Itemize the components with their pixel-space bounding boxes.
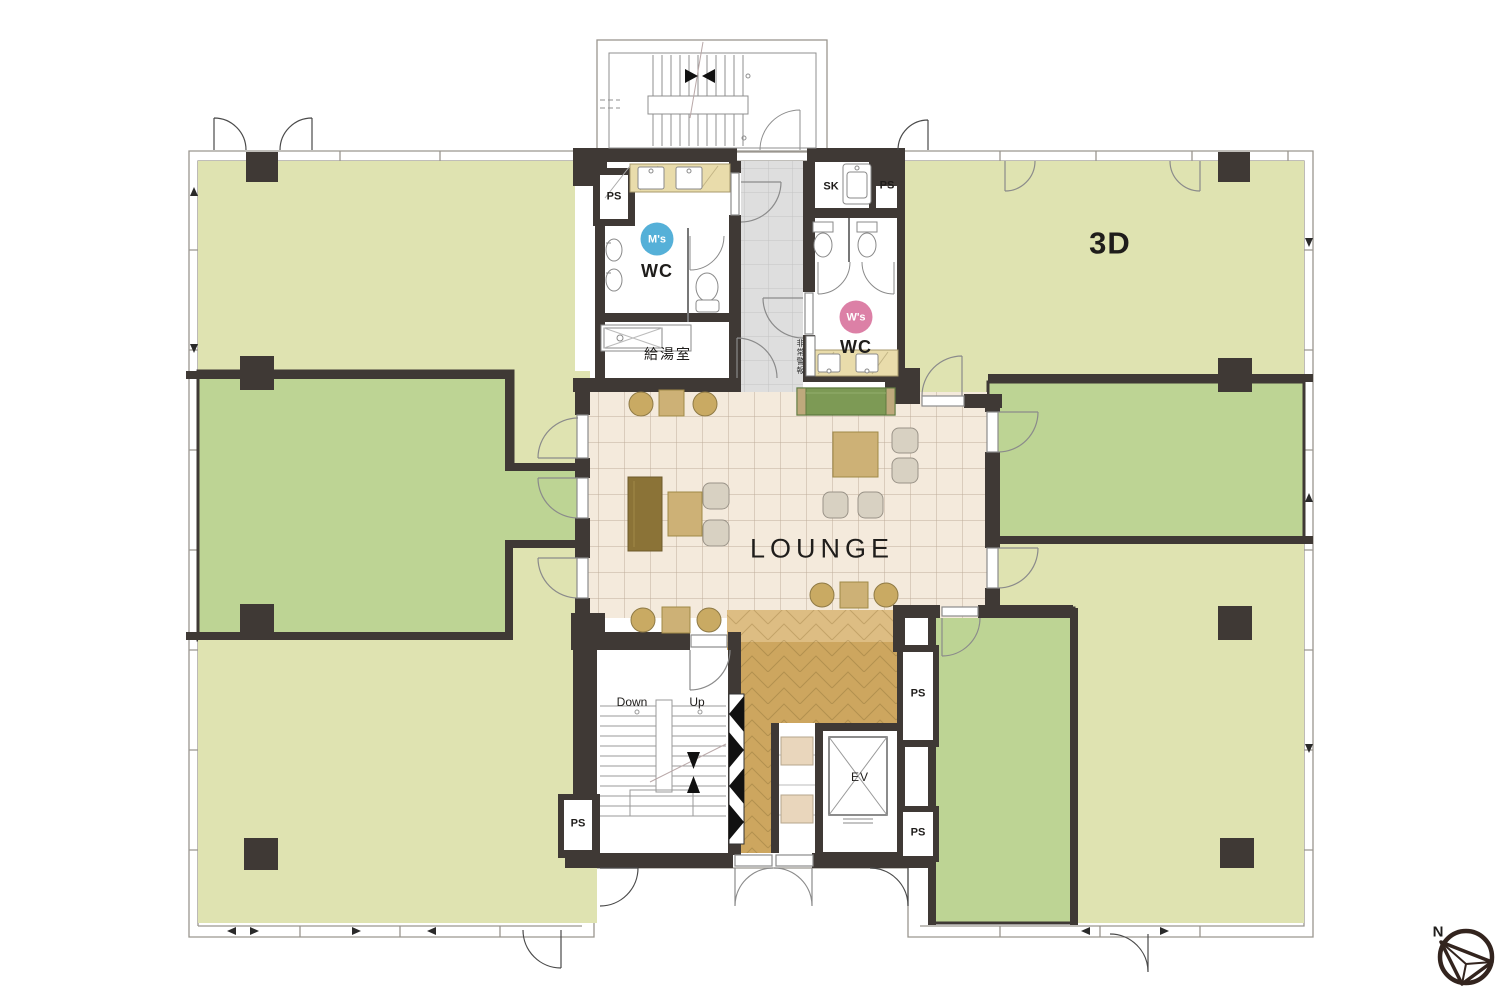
elevator [823, 731, 897, 852]
label-ps-left-bottom: PS [571, 819, 586, 830]
north-compass [1440, 931, 1492, 984]
exterior-doors-top [214, 118, 928, 150]
label-sk: SK [823, 182, 838, 193]
label-stair-down: Down [617, 696, 648, 708]
label-emergency-alarm: 非常警報 [796, 339, 804, 375]
stair-break-strip [729, 694, 744, 844]
label-ps-top-left: PS [607, 192, 622, 203]
label-ps-right-mid: PS [911, 689, 926, 700]
label-elevator: EV [851, 771, 869, 783]
label-lounge: LOUNGE [750, 536, 894, 563]
external-stair [600, 42, 816, 150]
room-bottom-left [198, 636, 597, 923]
label-stair-up: Up [689, 696, 704, 708]
elevator-hall-floor [727, 642, 897, 723]
label-ps-right-bottom: PS [911, 828, 926, 839]
label-tenant-3d: 3D [1089, 228, 1131, 259]
sofa [797, 388, 895, 415]
wood-threshold [727, 610, 893, 642]
room-top-right-3d [905, 161, 1304, 378]
room-mid-left [198, 371, 513, 640]
bench-seat [628, 477, 662, 551]
label-kitchenette: 給湯室 [644, 347, 692, 361]
floor-plan: 3D LOUNGE M's WC W's WC 給湯室 SK EV Down U… [0, 0, 1500, 997]
floor-plan-drawing [0, 0, 1500, 997]
label-womens-wc: WC [840, 338, 872, 356]
womens-badge-text: W's [846, 311, 865, 323]
room-top-left [198, 161, 575, 378]
room-mid-right [988, 382, 1304, 538]
exit-double-door [735, 855, 813, 906]
label-north: N [1433, 925, 1444, 940]
label-ps-top-right: PS [880, 181, 895, 192]
mens-badge-text: M's [648, 233, 666, 245]
label-mens-wc: WC [641, 262, 673, 280]
mens-badge: M's [641, 223, 674, 256]
room-bottom-center-green [932, 608, 1074, 923]
womens-badge: W's [840, 301, 873, 334]
